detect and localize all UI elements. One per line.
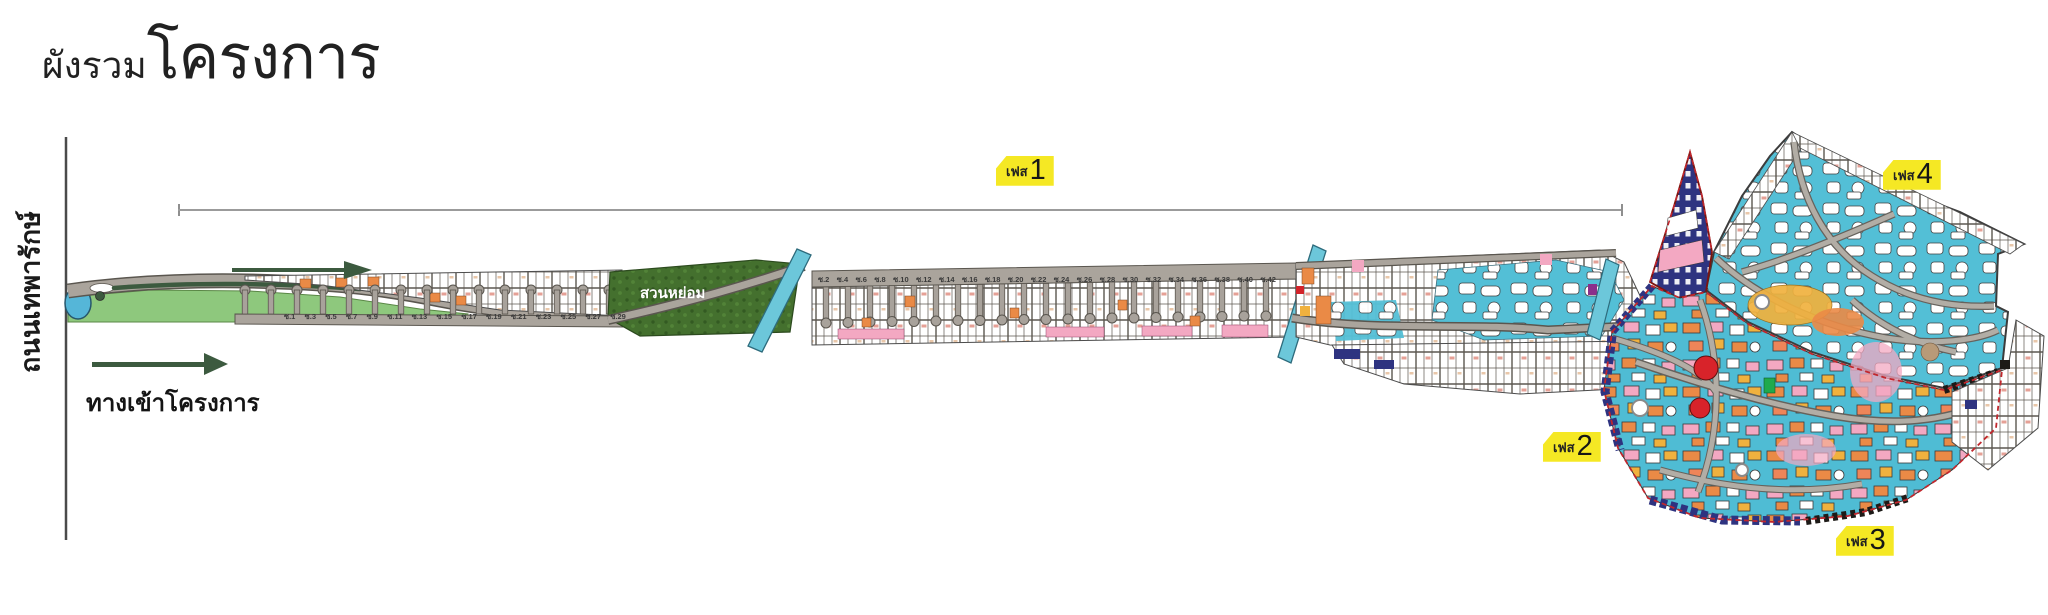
soi-label: ซ.16 (962, 274, 978, 286)
soi-label: ซ.19 (486, 311, 502, 323)
soi-label: ซ.8 (874, 274, 885, 286)
soi-label: ซ.32 (1146, 274, 1162, 286)
title-prefix: ผังรวม (42, 36, 147, 95)
garden-area (608, 249, 811, 352)
soi-label: ซ.22 (1031, 274, 1047, 286)
red-plot (1690, 398, 1710, 418)
phase1-extent-line (178, 204, 1623, 216)
roundabout (1755, 295, 1769, 309)
soi-label: ซ.7 (346, 311, 357, 323)
soi-label: ซ.30 (1123, 274, 1139, 286)
soi-label: ซ.2 (818, 274, 829, 286)
roundabout (1736, 464, 1748, 476)
entrance-label: ทางเข้าโครงการ (86, 383, 260, 422)
soi-label: ซ.40 (1237, 274, 1253, 286)
soi-label: ซ.13 (412, 311, 428, 323)
phase-tag-1: เฟส1 (996, 156, 1054, 186)
soi-label: ซ.38 (1214, 274, 1230, 286)
island-tree (96, 292, 105, 301)
soi-label: ซ.26 (1077, 274, 1093, 286)
soi-label: ซ.23 (536, 311, 552, 323)
phase-tag-4: เฟส4 (1883, 160, 1941, 190)
soi-label: ซ.3 (305, 311, 316, 323)
soi-label: ซ.14 (939, 274, 955, 286)
soi-label: ซ.18 (985, 274, 1001, 286)
thepharak-road-label: ถนนเทพารักษ์ (9, 211, 52, 373)
soi-label: ซ.12 (916, 274, 932, 286)
green-plot (1764, 378, 1775, 393)
red-plot (1694, 356, 1718, 380)
master-plan-page: ผังรวมโครงการ ถนนเทพารักษ์ เฟส1 เฟส2 เฟส… (0, 0, 2048, 615)
title-main: โครงการ (147, 8, 380, 105)
phase-tag-3: เฟส3 (1836, 526, 1894, 556)
soi-label: ซ.9 (367, 311, 378, 323)
soi-label: ซ.42 (1260, 274, 1276, 286)
soi-label: ซ.27 (585, 311, 601, 323)
soi-labels-odd: ซ.1ซ.3ซ.5ซ.7ซ.9ซ.11ซ.13ซ.15ซ.17ซ.19ซ.21ซ… (284, 311, 626, 323)
soi-label: ซ.20 (1008, 274, 1024, 286)
roundabout (1632, 400, 1648, 416)
soi-label: ซ.29 (610, 311, 626, 323)
soi-label: ซ.17 (461, 311, 477, 323)
soi-label: ซ.5 (325, 311, 336, 323)
soi-label: ซ.4 (837, 274, 848, 286)
page-title: ผังรวมโครงการ (42, 8, 380, 105)
soi-label: ซ.1 (284, 311, 295, 323)
soi-label: ซ.10 (893, 274, 909, 286)
soi-label: ซ.36 (1192, 274, 1208, 286)
garden-label: สวนหย่อม (640, 281, 705, 305)
soi-label: ซ.25 (561, 311, 577, 323)
soi-label: ซ.28 (1100, 274, 1116, 286)
soi-label: ซ.11 (387, 311, 402, 323)
soi-label: ซ.6 (856, 274, 867, 286)
entrance-arrow (92, 362, 204, 367)
soi-label: ซ.24 (1054, 274, 1070, 286)
tan-plot (1921, 343, 1939, 361)
soi-labels-even: ซ.2ซ.4ซ.6ซ.8ซ.10ซ.12ซ.14ซ.16ซ.18ซ.20ซ.22… (818, 274, 1276, 286)
phase-tag-2: เฟส2 (1543, 432, 1601, 462)
soi-label: ซ.34 (1169, 274, 1185, 286)
soi-label: ซ.15 (437, 311, 453, 323)
soi-label: ซ.21 (511, 311, 527, 323)
